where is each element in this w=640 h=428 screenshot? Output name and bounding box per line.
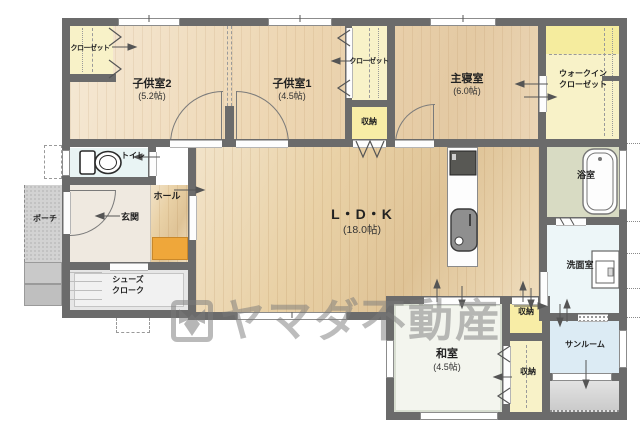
label-kids1-size: (4.5帖) [278, 89, 306, 102]
label-entry: 玄関 [121, 210, 139, 223]
floor-plan: 子供室2 (5.2帖) 子供室1 (4.5帖) 主寝室 (6.0帖) ウォークイ… [0, 0, 640, 428]
label-toilet: トイレ [121, 150, 145, 161]
label-shoecloset-2: クローク [112, 285, 144, 296]
label-ldk-size: (18.0帖) [343, 222, 381, 237]
sink-icon [451, 209, 477, 251]
toilet-icon [80, 151, 121, 174]
label-laundry: 洗面室 [566, 258, 593, 271]
label-storage-mid: 収納 [361, 116, 377, 127]
label-storage-e1: 収納 [518, 306, 534, 317]
stove-icon [450, 151, 476, 175]
label-porch: ポーチ [33, 213, 57, 224]
watermark-text: ヤマダ不動産 [220, 298, 502, 343]
bathtub-icon [583, 149, 617, 214]
plan-annotations [0, 0, 640, 428]
label-ldk: L・D・K [331, 204, 393, 224]
window-ticks [149, 15, 463, 318]
washbasin-icon [592, 251, 619, 288]
label-washitsu-size: (4.5帖) [433, 360, 461, 373]
label-shoecloset-1: シューズ [112, 274, 144, 285]
label-wic-1: ウォークイン [559, 68, 607, 79]
label-closet-mid: クローゼット [350, 56, 389, 66]
label-washitsu: 和室 [436, 345, 458, 361]
label-master-size: (6.0帖) [453, 84, 481, 97]
label-sunroom: サンルーム [565, 339, 605, 350]
label-closet-nw: クローゼット [71, 43, 110, 53]
label-bath: 浴室 [577, 168, 595, 181]
watermark-logo [171, 300, 213, 342]
label-hall: ホール [153, 189, 180, 202]
label-storage-e2: 収納 [520, 366, 536, 377]
label-wic-2: クローゼット [559, 79, 607, 90]
label-kids2-size: (5.2帖) [138, 89, 166, 102]
